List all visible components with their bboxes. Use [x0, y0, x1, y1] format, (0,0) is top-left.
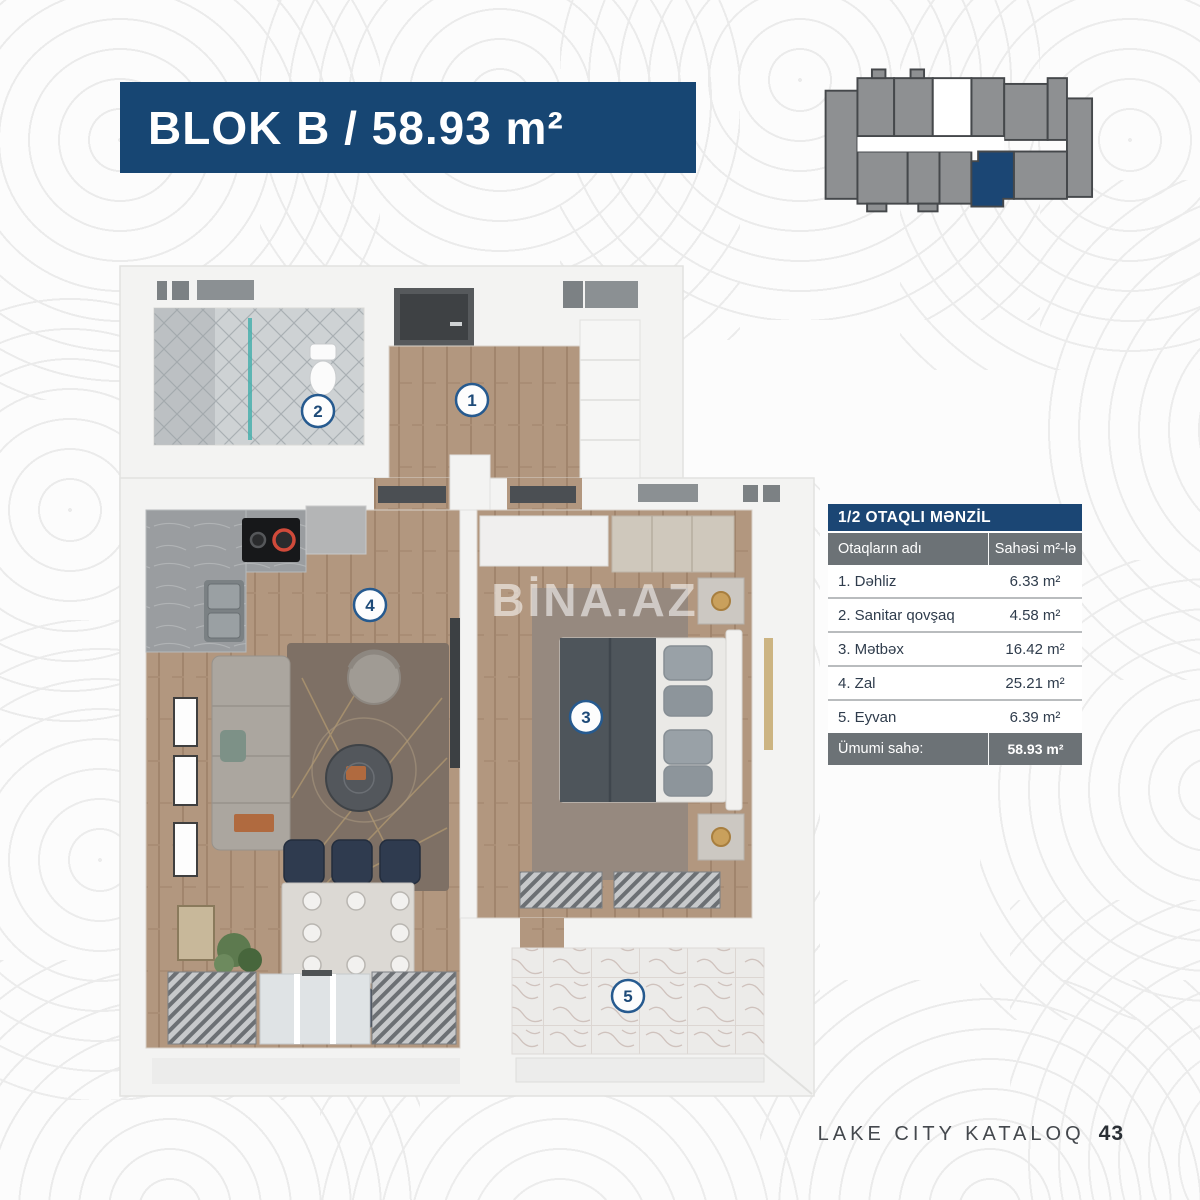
door-leaf-bedroom — [510, 486, 576, 503]
room-badge-4: 4 — [354, 589, 386, 621]
sofa-pillow — [220, 730, 246, 762]
armchair — [348, 652, 400, 704]
room-area: 6.39 m² — [988, 701, 1082, 733]
shower-glass — [248, 318, 252, 440]
column-header-name: Otaqların adı — [828, 533, 988, 565]
building-key-plan-svg — [814, 52, 1094, 224]
tv-panel — [450, 618, 460, 768]
bedroom-wardrobe — [612, 516, 734, 572]
shower-zone — [154, 308, 215, 445]
room-badge-1: 1 — [456, 384, 488, 416]
living-window — [260, 970, 370, 1044]
total-area: 58.93 m² — [988, 733, 1082, 765]
banner: BLOK B / 58.93 m² — [120, 82, 696, 173]
radiator-living-left — [168, 972, 256, 1044]
floor-plan: BİNA.AZ 1 2 3 4 5 — [112, 258, 818, 1105]
hallway-wardrobe — [580, 320, 640, 478]
column-header-area: Sahəsi m²-lə — [988, 533, 1082, 565]
table-title: 1/2 OTAQLI MƏNZİL — [828, 504, 1082, 533]
key-plan-corridor — [857, 137, 1004, 151]
bedroom-closet — [480, 516, 608, 566]
table-row: 5. Eyvan 6.39 m² — [828, 699, 1082, 733]
room-name: 5. Eyvan — [828, 701, 988, 733]
svg-text:5: 5 — [623, 987, 632, 1006]
gold-wall-decor — [764, 638, 773, 750]
key-plan-elevator-core — [933, 78, 972, 136]
room-badge-3: 3 — [570, 701, 602, 733]
radiator-living-right — [372, 972, 456, 1044]
room-area: 16.42 m² — [988, 633, 1082, 665]
svg-text:3: 3 — [581, 708, 590, 727]
bathroom — [154, 308, 364, 445]
table-row: 4. Zal 25.21 m² — [828, 665, 1082, 699]
entrance-door — [400, 294, 468, 340]
kitchen-column — [306, 506, 366, 554]
svg-text:1: 1 — [467, 391, 476, 410]
room-name: 1. Dəhliz — [828, 565, 988, 597]
room-badge-2: 2 — [302, 395, 334, 427]
painting — [178, 906, 214, 960]
room-area: 6.33 m² — [988, 565, 1082, 597]
footer-page-number: 43 — [1099, 1122, 1124, 1146]
area-table: 1/2 OTAQLI MƏNZİL Otaqların adı Sahəsi m… — [828, 504, 1082, 765]
footer: LAKE CITY KATALOQ 43 — [818, 1122, 1124, 1146]
svg-text:2: 2 — [313, 402, 322, 421]
room-area: 4.58 m² — [988, 599, 1082, 631]
bedroom — [477, 510, 773, 918]
door-leaf-living — [378, 486, 446, 503]
room-name: 2. Sanitar qovşaq — [828, 599, 988, 631]
room-name: 3. Mətbəx — [828, 633, 988, 665]
radiator-bedroom-right — [614, 872, 720, 908]
key-plan-highlighted-unit — [971, 152, 1013, 207]
kitchen-sink — [204, 580, 244, 642]
total-label: Ümumi sahə: — [828, 733, 988, 765]
table-header-row: Otaqların adı Sahəsi m²-lə — [828, 533, 1082, 565]
table-row: 2. Sanitar qovşaq 4.58 m² — [828, 597, 1082, 631]
facade-window-band-left — [152, 1058, 460, 1084]
bed-headboard — [726, 630, 742, 810]
toilet — [310, 344, 336, 395]
balcony-door-opening — [520, 918, 564, 950]
wall-frames — [174, 698, 197, 876]
table-total-row: Ümumi sahə: 58.93 m² — [828, 733, 1082, 765]
svg-text:4: 4 — [365, 596, 375, 615]
facade-window-band-right — [516, 1058, 764, 1082]
sofa-books — [234, 814, 274, 832]
sofa — [212, 656, 290, 850]
coffee-table — [326, 745, 392, 811]
room-area: 25.21 m² — [988, 667, 1082, 699]
table-row: 1. Dəhliz 6.33 m² — [828, 565, 1082, 597]
cooktop — [242, 518, 300, 562]
dining-table — [282, 883, 414, 983]
building-key-plan — [814, 52, 1094, 224]
floor-plan-svg: BİNA.AZ 1 2 3 4 5 — [112, 258, 818, 1105]
table-row: 3. Mətbəx 16.42 m² — [828, 631, 1082, 665]
room-name: 4. Zal — [828, 667, 988, 699]
living-room — [146, 506, 460, 1084]
room-badge-5: 5 — [612, 980, 644, 1012]
door-handle — [450, 322, 462, 326]
banner-title: BLOK B / 58.93 m² — [148, 101, 564, 155]
radiator-bedroom-left — [520, 872, 602, 908]
watermark: BİNA.AZ — [491, 574, 699, 626]
wall-stub — [450, 455, 490, 510]
footer-brand: LAKE CITY KATALOQ — [818, 1123, 1085, 1146]
